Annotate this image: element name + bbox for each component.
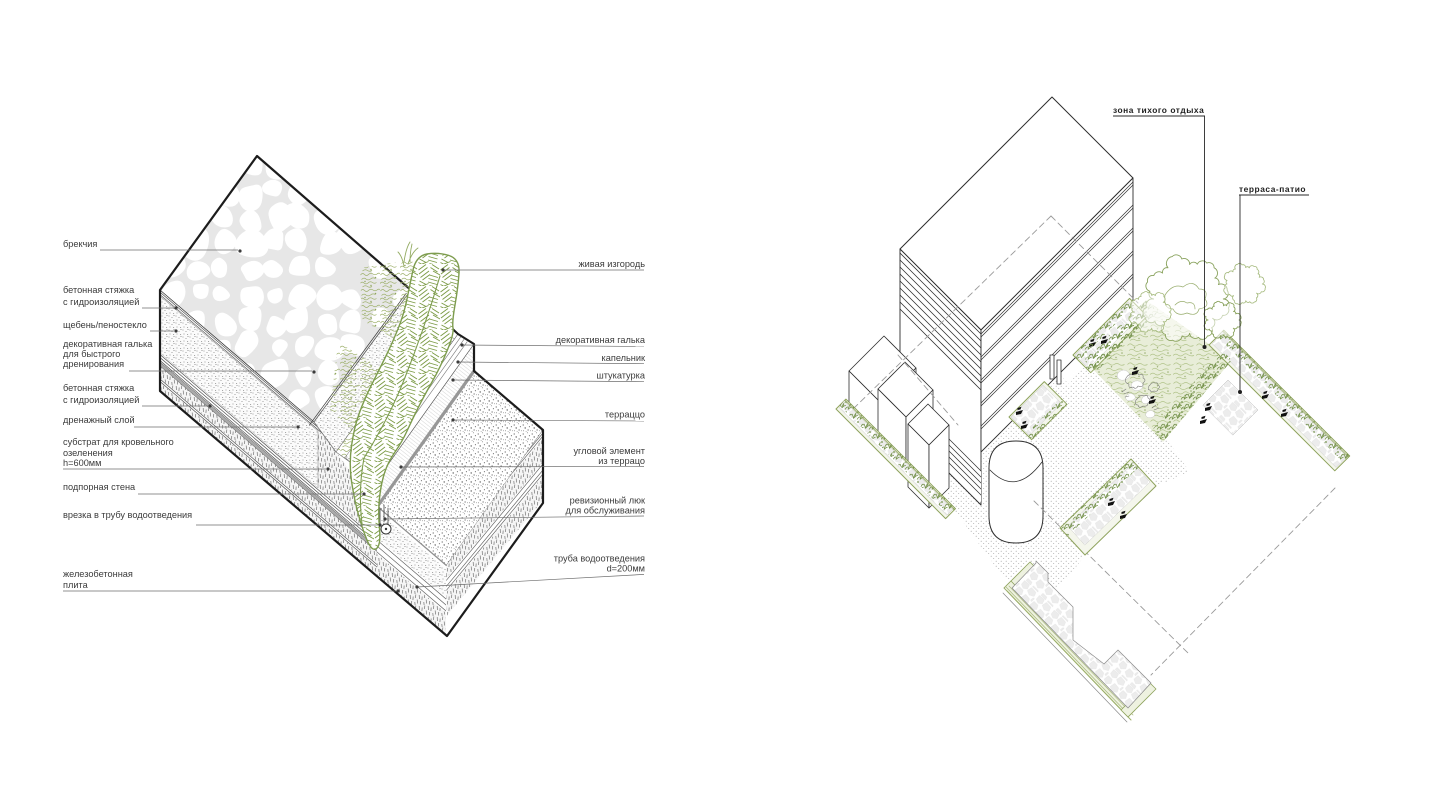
svg-text:зона тихого отдыха: зона тихого отдыха xyxy=(1113,105,1204,115)
svg-text:терраса-патио: терраса-патио xyxy=(1239,184,1306,194)
svg-text:капельник: капельник xyxy=(602,353,646,363)
svg-text:дренирования: дренирования xyxy=(63,359,124,369)
svg-text:ревизионный люк: ревизионный люк xyxy=(570,496,646,506)
svg-text:врезка в трубу водоотведения: врезка в трубу водоотведения xyxy=(63,510,192,520)
svg-text:брекчия: брекчия xyxy=(63,239,97,249)
svg-text:озеленения: озеленения xyxy=(63,448,113,458)
svg-text:терраццо: терраццо xyxy=(605,410,645,420)
svg-text:с гидроизоляцией: с гидроизоляцией xyxy=(63,297,139,307)
svg-text:для быстрого: для быстрого xyxy=(63,349,120,359)
svg-text:труба водоотведения: труба водоотведения xyxy=(554,554,645,564)
svg-text:плита: плита xyxy=(63,580,89,590)
svg-text:бетонная стяжка: бетонная стяжка xyxy=(63,383,135,393)
svg-text:из террацо: из террацо xyxy=(598,456,645,466)
svg-text:декоративная галька: декоративная галька xyxy=(63,339,153,349)
svg-text:щебень/пеностекло: щебень/пеностекло xyxy=(63,320,147,330)
svg-text:h=600мм: h=600мм xyxy=(63,458,101,468)
svg-text:дренажный слой: дренажный слой xyxy=(63,415,135,425)
svg-text:подпорная стена: подпорная стена xyxy=(63,482,136,492)
svg-text:бетонная стяжка: бетонная стяжка xyxy=(63,285,135,295)
svg-text:живая изгородь: живая изгородь xyxy=(579,259,646,269)
svg-text:железобетонная: железобетонная xyxy=(63,569,133,579)
svg-text:штукатурка: штукатурка xyxy=(596,371,646,381)
svg-text:угловой элемент: угловой элемент xyxy=(573,446,645,456)
svg-text:субстрат для кровельного: субстрат для кровельного xyxy=(63,437,174,447)
svg-text:с гидроизоляцией: с гидроизоляцией xyxy=(63,395,139,405)
svg-text:для обслуживания: для обслуживания xyxy=(565,506,645,516)
svg-text:d=200мм: d=200мм xyxy=(607,564,645,574)
svg-text:декоративная галька: декоративная галька xyxy=(556,335,646,345)
